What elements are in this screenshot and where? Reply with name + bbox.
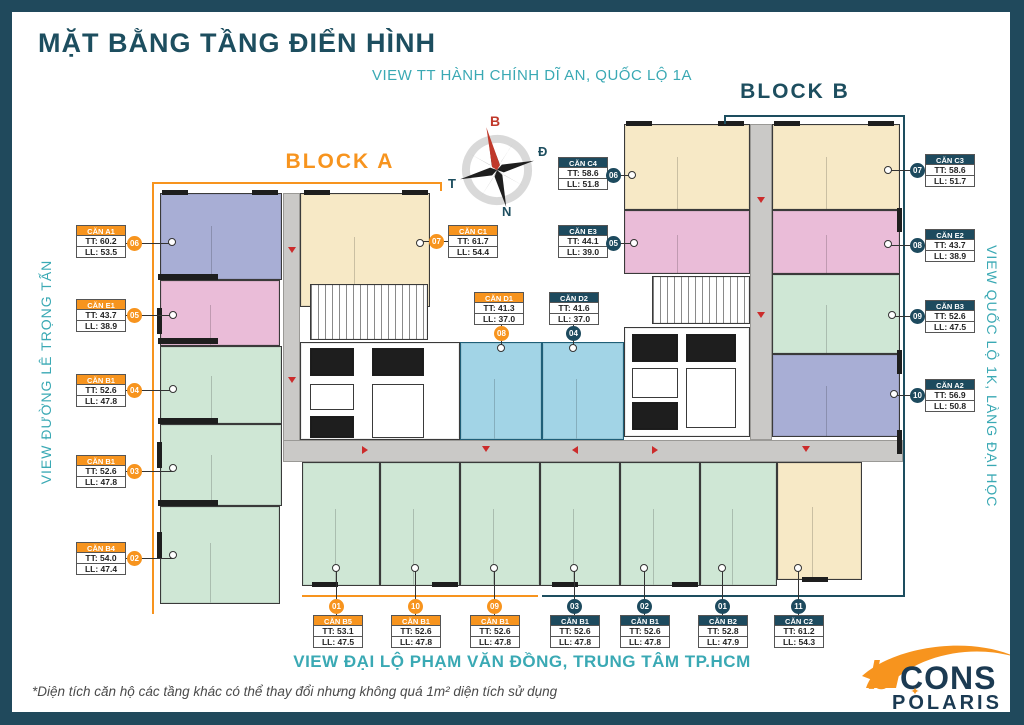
unit-badge: 02: [637, 599, 652, 614]
bcons-polaris-logo: b CONS PO✦LARIS: [858, 636, 1024, 724]
unit-badge: 01: [329, 599, 344, 614]
wall-segment: [312, 582, 338, 587]
unit-area-tt: TT: 53.1: [313, 626, 363, 637]
compass-south-letter: N: [502, 204, 511, 219]
compass-north-letter: B: [490, 113, 500, 129]
unit-badge: 01: [715, 599, 730, 614]
unit-e2: [772, 210, 900, 274]
unit-area-tt: TT: 58.6: [925, 165, 975, 176]
leader-dot: [490, 564, 498, 572]
unit-badge: 03: [127, 464, 142, 479]
unit-callout: CĂN A1TT: 60.2LL: 53.5: [76, 225, 126, 258]
wall-segment: [157, 442, 162, 468]
unit-name: CĂN B1: [550, 615, 600, 626]
block-b-bracket: [724, 115, 726, 124]
unit-area-tt: TT: 60.2: [76, 236, 126, 247]
compass-west-letter: T: [448, 176, 456, 191]
corridor-arrow: [362, 446, 368, 454]
wall-segment: [774, 121, 800, 126]
unit-b5: [302, 462, 380, 586]
unit-callout: CĂN B1TT: 52.6LL: 47.8: [620, 615, 670, 648]
unit-area-ll: LL: 54.3: [774, 637, 824, 648]
unit-b1-10: [380, 462, 460, 586]
unit-callout: CĂN E1TT: 43.7LL: 38.9: [76, 299, 126, 332]
lift-a1: [310, 348, 354, 376]
unit-callout: CĂN C3TT: 58.6LL: 51.7: [925, 154, 975, 187]
unit-area-tt: TT: 52.6: [76, 466, 126, 477]
unit-area-tt: TT: 58.6: [558, 168, 608, 179]
unit-area-ll: LL: 47.5: [925, 322, 975, 333]
unit-area-ll: LL: 51.7: [925, 176, 975, 187]
unit-area-ll: LL: 47.8: [76, 396, 126, 407]
lift-b3: [632, 368, 678, 398]
unit-area-tt: TT: 41.3: [474, 303, 524, 314]
lift-a3: [310, 384, 354, 410]
unit-name: CĂN B1: [76, 455, 126, 466]
unit-e3: [624, 210, 750, 274]
unit-area-ll: LL: 37.0: [474, 314, 524, 325]
unit-badge: 02: [127, 551, 142, 566]
logo-swoosh: b CONS: [858, 642, 1024, 694]
corridor-b: [750, 124, 772, 440]
leader-dot: [884, 166, 892, 174]
corridor-main: [283, 440, 903, 462]
corridor-arrow: [572, 446, 578, 454]
corridor-a: [283, 193, 300, 442]
unit-badge: 07: [429, 234, 444, 249]
leader-dot: [890, 390, 898, 398]
unit-name: CĂN D2: [549, 292, 599, 303]
leader-dot: [884, 240, 892, 248]
wall-segment: [897, 430, 902, 454]
wall-segment: [897, 208, 902, 232]
unit-callout: CĂN D1TT: 41.3LL: 37.0: [474, 292, 524, 325]
leader-dot: [628, 171, 636, 179]
wall-segment: [162, 190, 188, 195]
unit-area-tt: TT: 43.7: [76, 310, 126, 321]
unit-area-ll: LL: 39.0: [558, 247, 608, 258]
unit-badge: 08: [910, 238, 925, 253]
unit-area-ll: LL: 47.8: [391, 637, 441, 648]
corridor-arrow: [802, 446, 810, 452]
lift-b1: [632, 334, 678, 362]
unit-area-ll: LL: 51.8: [558, 179, 608, 190]
leader-dot: [640, 564, 648, 572]
unit-area-ll: LL: 47.8: [470, 637, 520, 648]
unit-area-tt: TT: 54.0: [76, 553, 126, 564]
corridor-arrow: [652, 446, 658, 454]
unit-e1: [160, 280, 280, 346]
lift-a2: [372, 348, 424, 376]
unit-area-tt: TT: 52.6: [550, 626, 600, 637]
wall-segment: [158, 418, 218, 424]
wall-segment: [304, 190, 330, 195]
unit-area-ll: LL: 53.5: [76, 247, 126, 258]
wall-segment: [402, 190, 428, 195]
floorplan-page: MẶT BẰNG TẦNG ĐIỂN HÌNH VIEW TT HÀNH CHÍ…: [0, 0, 1024, 725]
unit-badge: 10: [910, 388, 925, 403]
leader-dot: [497, 344, 505, 352]
unit-name: CĂN C4: [558, 157, 608, 168]
wall-segment: [158, 338, 218, 344]
lift-a5: [372, 384, 424, 438]
unit-area-tt: TT: 61.7: [448, 236, 498, 247]
leader-dot: [570, 564, 578, 572]
corridor-arrow: [757, 197, 765, 203]
unit-badge: 11: [791, 599, 806, 614]
unit-name: CĂN B2: [698, 615, 748, 626]
unit-c2: [777, 462, 862, 580]
wall-segment: [802, 577, 828, 582]
unit-area-ll: LL: 38.9: [76, 321, 126, 332]
unit-badge: 07: [910, 163, 925, 178]
unit-area-tt: TT: 41.6: [549, 303, 599, 314]
compass-rose: B Đ T N: [442, 112, 552, 224]
corridor-arrow: [757, 312, 765, 318]
lift-b2: [686, 334, 736, 362]
unit-d1: [460, 342, 542, 440]
unit-area-tt: TT: 44.1: [558, 236, 608, 247]
unit-area-ll: LL: 47.8: [550, 637, 600, 648]
unit-area-tt: TT: 52.6: [620, 626, 670, 637]
unit-callout: CĂN E2TT: 43.7LL: 38.9: [925, 229, 975, 262]
unit-b1-03b: [540, 462, 620, 586]
lift-a4: [310, 416, 354, 438]
unit-area-ll: LL: 37.0: [549, 314, 599, 325]
leader-dot: [416, 239, 424, 247]
lift-b4: [632, 402, 678, 430]
unit-name: CĂN E1: [76, 299, 126, 310]
unit-area-tt: TT: 43.7: [925, 240, 975, 251]
corridor-arrow: [288, 377, 296, 383]
leader-dot: [169, 464, 177, 472]
corridor-arrow: [482, 446, 490, 452]
leader-dot: [168, 238, 176, 246]
corridor-arrow: [288, 247, 296, 253]
unit-d2: [542, 342, 624, 440]
unit-b4: [160, 506, 280, 604]
compass-east-letter: Đ: [538, 144, 547, 159]
unit-area-tt: TT: 52.6: [470, 626, 520, 637]
lift-b5: [686, 368, 736, 428]
unit-badge: 06: [127, 236, 142, 251]
unit-callout: CĂN B5TT: 53.1LL: 47.5: [313, 615, 363, 648]
unit-area-ll: LL: 47.8: [620, 637, 670, 648]
unit-badge: 10: [408, 599, 423, 614]
unit-name: CĂN B1: [76, 374, 126, 385]
unit-b3: [772, 274, 900, 354]
wall-segment: [158, 500, 218, 506]
wall-segment: [868, 121, 894, 126]
unit-badge: 09: [487, 599, 502, 614]
unit-c3: [772, 124, 900, 210]
unit-name: CĂN C1: [448, 225, 498, 236]
leader-dot: [332, 564, 340, 572]
unit-callout: CĂN C1TT: 61.7LL: 54.4: [448, 225, 498, 258]
unit-c4: [624, 124, 750, 210]
leader-dot: [169, 385, 177, 393]
unit-area-tt: TT: 52.6: [76, 385, 126, 396]
leader-dot: [630, 239, 638, 247]
unit-area-ll: LL: 38.9: [925, 251, 975, 262]
leader-dot: [794, 564, 802, 572]
wall-segment: [432, 582, 458, 587]
unit-callout: CĂN B1TT: 52.6LL: 47.8: [470, 615, 520, 648]
unit-callout: CĂN C4TT: 58.6LL: 51.8: [558, 157, 608, 190]
wall-segment: [718, 121, 744, 126]
unit-name: CĂN B1: [470, 615, 520, 626]
unit-callout: CĂN B2TT: 52.8LL: 47.9: [698, 615, 748, 648]
unit-area-ll: LL: 47.5: [313, 637, 363, 648]
unit-area-tt: TT: 52.8: [698, 626, 748, 637]
unit-area-tt: TT: 61.2: [774, 626, 824, 637]
unit-name: CĂN A1: [76, 225, 126, 236]
unit-callout: CĂN B1TT: 52.6LL: 47.8: [76, 374, 126, 407]
unit-area-ll: LL: 47.9: [698, 637, 748, 648]
block-a-bracket: [152, 182, 154, 614]
logo-polaris-text: PO✦LARIS: [892, 692, 1002, 715]
unit-name: CĂN E3: [558, 225, 608, 236]
unit-name: CĂN E2: [925, 229, 975, 240]
unit-name: CĂN B1: [391, 615, 441, 626]
unit-name: CĂN B5: [313, 615, 363, 626]
unit-name: CĂN A2: [925, 379, 975, 390]
unit-badge: 05: [606, 236, 621, 251]
wall-segment: [897, 350, 902, 374]
leader-dot: [888, 311, 896, 319]
unit-name: CĂN D1: [474, 292, 524, 303]
block-a-bracket: [152, 182, 442, 184]
unit-area-tt: TT: 52.6: [925, 311, 975, 322]
wall-segment: [252, 190, 278, 195]
wall-segment: [157, 308, 162, 334]
unit-callout: CĂN C2TT: 61.2LL: 54.3: [774, 615, 824, 648]
unit-badge: 03: [567, 599, 582, 614]
unit-b1-03: [160, 424, 282, 506]
unit-badge: 05: [127, 308, 142, 323]
unit-callout: CĂN B3TT: 52.6LL: 47.5: [925, 300, 975, 333]
unit-callout: CĂN D2TT: 41.6LL: 37.0: [549, 292, 599, 325]
unit-a2: [772, 354, 900, 437]
unit-name: CĂN C3: [925, 154, 975, 165]
leader-dot: [169, 311, 177, 319]
unit-area-ll: LL: 50.8: [925, 401, 975, 412]
unit-name: CĂN B3: [925, 300, 975, 311]
unit-b2: [700, 462, 777, 586]
unit-badge: 08: [494, 326, 509, 341]
unit-a1: [160, 193, 282, 280]
unit-b1-04: [160, 346, 282, 424]
unit-callout: CĂN B1TT: 52.6LL: 47.8: [550, 615, 600, 648]
unit-b1-02: [620, 462, 700, 586]
unit-area-ll: LL: 47.4: [76, 564, 126, 575]
svg-text:b: b: [868, 654, 892, 694]
stair-b: [652, 276, 750, 324]
leader-dot: [569, 344, 577, 352]
unit-badge: 04: [566, 326, 581, 341]
unit-badge: 06: [606, 168, 621, 183]
unit-name: CĂN B1: [620, 615, 670, 626]
unit-area-tt: TT: 56.9: [925, 390, 975, 401]
unit-callout: CĂN B4TT: 54.0LL: 47.4: [76, 542, 126, 575]
wall-segment: [158, 274, 218, 280]
unit-area-ll: LL: 54.4: [448, 247, 498, 258]
wall-segment: [157, 532, 162, 558]
unit-callout: CĂN A2TT: 56.9LL: 50.8: [925, 379, 975, 412]
unit-badge: 04: [127, 383, 142, 398]
unit-b1-09: [460, 462, 540, 586]
leader-dot: [169, 551, 177, 559]
wall-segment: [626, 121, 652, 126]
unit-callout: CĂN E3TT: 44.1LL: 39.0: [558, 225, 608, 258]
star-icon: ✦: [910, 685, 919, 698]
block-b-bracket: [903, 115, 905, 597]
unit-area-ll: LL: 47.8: [76, 477, 126, 488]
leader-dot: [718, 564, 726, 572]
leader-dot: [411, 564, 419, 572]
block-a-bracket: [302, 595, 538, 597]
unit-area-tt: TT: 52.6: [391, 626, 441, 637]
block-b-bracket: [724, 115, 905, 117]
unit-badge: 09: [910, 309, 925, 324]
unit-name: CĂN B4: [76, 542, 126, 553]
stair-a: [310, 284, 428, 340]
unit-callout: CĂN B1TT: 52.6LL: 47.8: [76, 455, 126, 488]
unit-callout: CĂN B1TT: 52.6LL: 47.8: [391, 615, 441, 648]
unit-name: CĂN C2: [774, 615, 824, 626]
wall-segment: [672, 582, 698, 587]
